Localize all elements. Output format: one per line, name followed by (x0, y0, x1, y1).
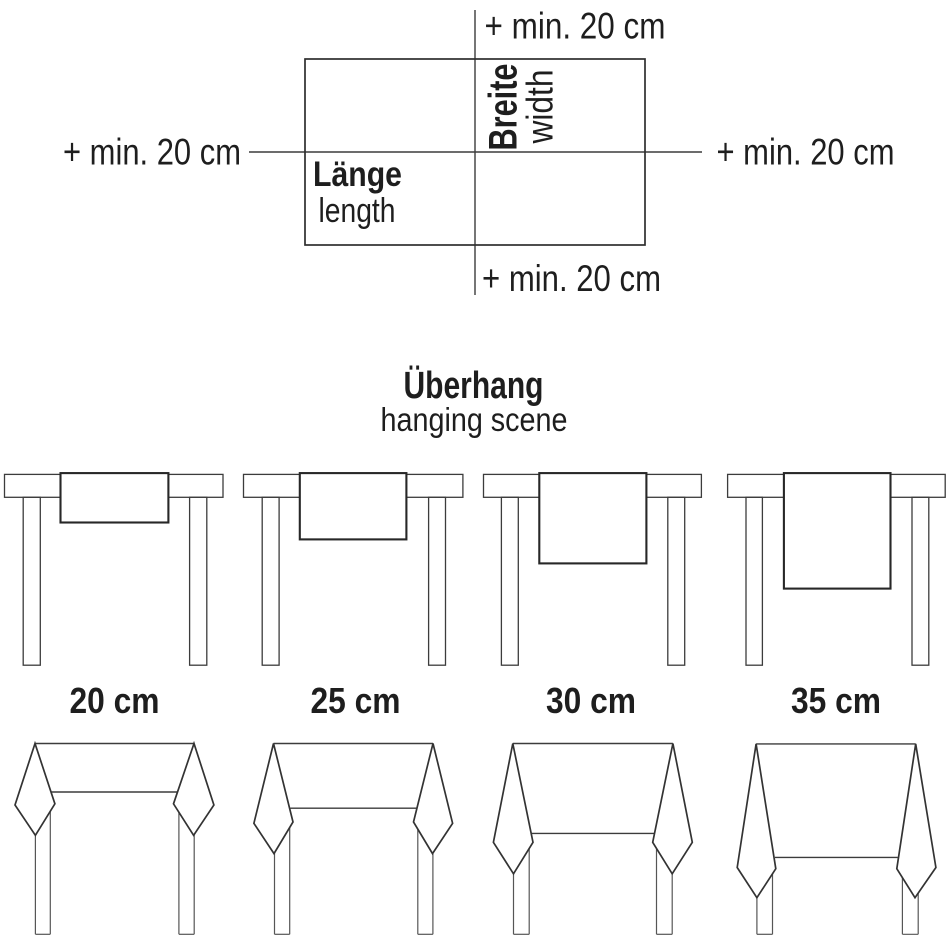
svg-text:+ min. 20 cm: + min. 20 cm (63, 132, 241, 173)
svg-text:20 cm: 20 cm (70, 680, 160, 721)
svg-text:width: width (519, 70, 561, 145)
svg-text:Länge: Länge (313, 155, 402, 194)
svg-text:length: length (319, 192, 396, 230)
svg-text:30 cm: 30 cm (546, 680, 636, 721)
svg-text:hanging scene: hanging scene (381, 401, 568, 438)
svg-text:+ min. 20 cm: + min. 20 cm (717, 132, 895, 173)
svg-text:+ min. 20 cm: + min. 20 cm (485, 6, 666, 47)
svg-text:+ min. 20 cm: + min. 20 cm (482, 258, 661, 299)
svg-text:35 cm: 35 cm (791, 680, 881, 721)
svg-text:25 cm: 25 cm (311, 680, 401, 721)
